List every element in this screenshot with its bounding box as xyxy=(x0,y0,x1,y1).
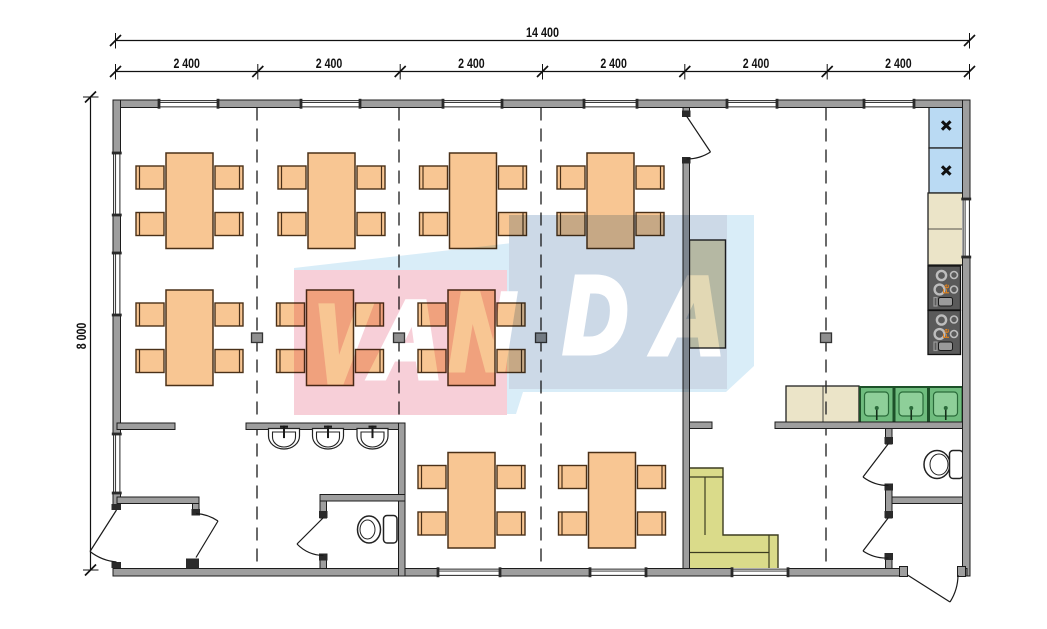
svg-text:A: A xyxy=(651,255,724,376)
svg-text:N: N xyxy=(450,271,515,392)
svg-text:A: A xyxy=(369,279,442,400)
svg-text:D: D xyxy=(564,254,627,375)
svg-text:V: V xyxy=(315,283,371,404)
